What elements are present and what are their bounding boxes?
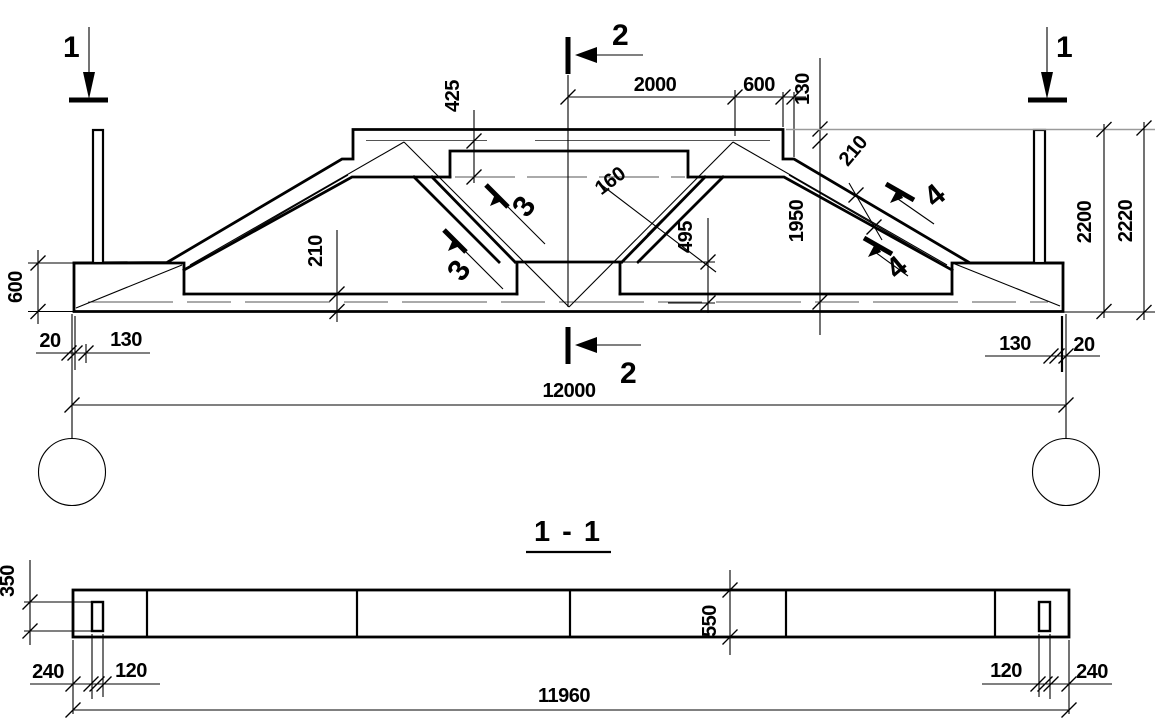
section-marker-4-upper: 4 — [886, 178, 952, 224]
grid-circle-right — [1033, 439, 1100, 506]
dim-240-left-label: 240 — [32, 661, 64, 683]
grid-circles — [39, 439, 1100, 506]
dim-130-20-right: 130 20 — [985, 316, 1100, 372]
dim-120-left-label: 120 — [115, 660, 147, 682]
pin-hole-right — [1039, 602, 1050, 631]
dim-600-end: 600 — [5, 250, 73, 324]
truss-drawing-canvas: 2000 600 130 425 1950 210 160 — [0, 0, 1161, 718]
dim-130-left-label: 130 — [110, 329, 142, 351]
marker-4-lower-label: 4 — [880, 250, 914, 286]
pin-hole-left — [92, 602, 103, 631]
section-1-1-view: 1 - 1 350 240 120 — [0, 516, 1112, 718]
dim-160: 160 — [591, 163, 716, 272]
dim-425: 425 — [442, 80, 482, 185]
dim-11960-label: 11960 — [538, 685, 590, 707]
reinforcement-lines — [76, 75, 1060, 308]
dim-120-right-label: 120 — [990, 660, 1022, 682]
dim-240-120-left: 240 120 — [30, 634, 160, 714]
elevation-view: 2000 600 130 425 1950 210 160 — [5, 19, 1155, 506]
grid-circle-left — [39, 439, 106, 506]
dim-600-top-label: 600 — [743, 74, 775, 96]
dim-20-right-label: 20 — [1073, 334, 1095, 356]
dim-550: 550 — [699, 570, 738, 655]
section-marker-1-right: 1 — [1028, 27, 1073, 100]
section-marker-3-upper: 3 — [486, 185, 545, 244]
left-support-pin — [93, 130, 103, 263]
dim-495-label: 495 — [675, 221, 697, 253]
dim-130-right-label: 130 — [999, 333, 1031, 355]
plan-bar — [73, 590, 1069, 637]
dim-550-label: 550 — [699, 605, 721, 637]
marker-1-left-label: 1 — [63, 31, 80, 64]
dim-130-top-label: 130 — [792, 73, 814, 105]
dim-2200-label: 2200 — [1074, 200, 1096, 243]
dim-350-label: 350 — [0, 565, 19, 597]
section-marker-1-left: 1 — [63, 27, 108, 100]
dim-chord-210-label: 210 — [305, 235, 327, 267]
dim-top-chain: 2000 600 130 — [561, 73, 815, 157]
dim-chord-210: 210 — [305, 230, 345, 322]
dim-350: 350 — [0, 560, 92, 645]
dim-2220-label: 2220 — [1115, 199, 1137, 242]
dim-240-right-label: 240 — [1076, 661, 1108, 683]
dim-20-left-label: 20 — [39, 330, 61, 352]
dim-160-label: 160 — [591, 163, 630, 200]
dim-20-130-left: 20 130 — [36, 316, 150, 370]
dim-11960: 11960 — [66, 685, 1077, 718]
dim-600-end-label: 600 — [5, 271, 27, 303]
dim-120-240-right: 120 240 — [982, 634, 1112, 714]
dim-2000-label: 2000 — [634, 74, 677, 96]
marker-3-upper-label: 3 — [506, 190, 543, 223]
marker-1-right-label: 1 — [1056, 31, 1073, 64]
section-marker-2-top: 2 — [568, 19, 643, 74]
dim-12000-label: 12000 — [542, 380, 595, 402]
marker-3-lower-label: 3 — [441, 254, 478, 287]
dim-1950-label: 1950 — [786, 199, 808, 242]
marker-2-bottom-label: 2 — [620, 357, 637, 390]
marker-2-top-label: 2 — [612, 19, 629, 52]
dim-flange-210-label: 210 — [835, 132, 873, 171]
dim-425-label: 425 — [442, 80, 464, 112]
right-support-pin — [1034, 130, 1045, 263]
section-title: 1 - 1 — [534, 516, 602, 548]
marker-4-upper-label: 4 — [918, 178, 952, 214]
drawing-page: 2000 600 130 425 1950 210 160 — [0, 0, 1161, 718]
